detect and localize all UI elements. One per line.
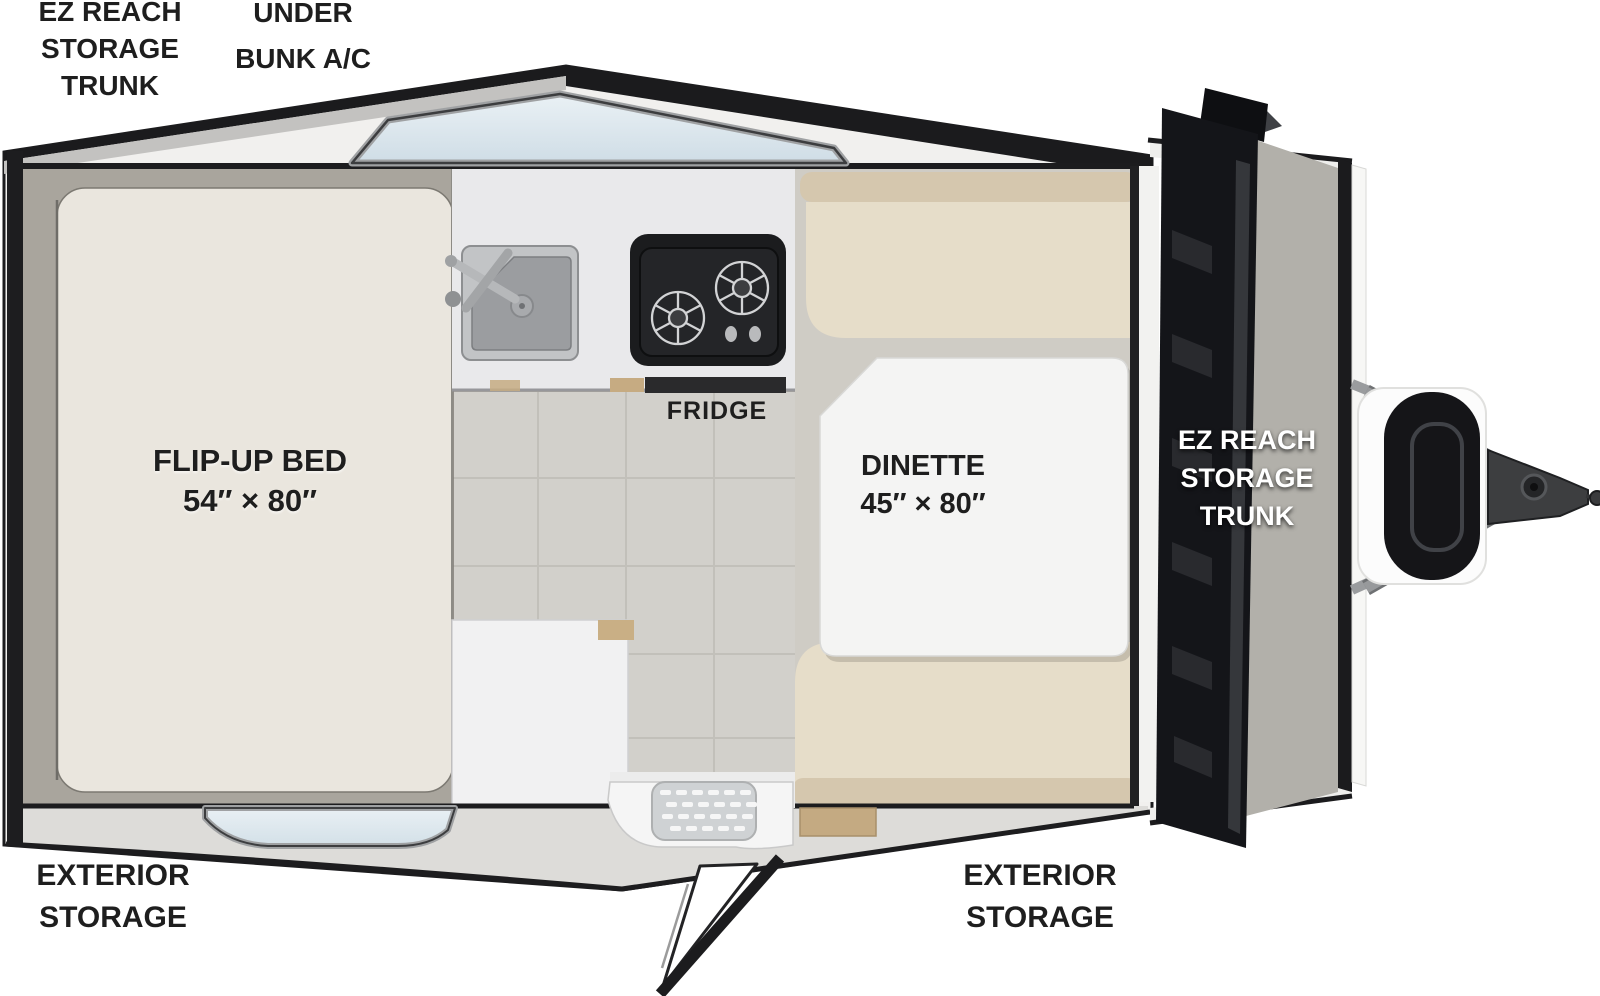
cabinet bbox=[452, 620, 634, 806]
label-front-trunk: EZ REACH STORAGE TRUNK bbox=[1137, 421, 1357, 535]
dinette-backrest-lower bbox=[793, 778, 1138, 804]
label-line: EXTERIOR bbox=[910, 855, 1170, 897]
two-burner-stove bbox=[630, 234, 786, 366]
label-line: UNDER bbox=[183, 0, 423, 36]
label-exterior-storage-left: EXTERIOR STORAGE bbox=[0, 855, 243, 939]
entry-mat bbox=[800, 808, 876, 836]
dinette-bench-upper bbox=[806, 202, 1138, 338]
stove-knob bbox=[749, 326, 761, 342]
label-line: STORAGE bbox=[910, 897, 1170, 939]
label-line: TRUNK bbox=[1137, 497, 1357, 535]
fridge-front bbox=[645, 377, 786, 393]
dinette-bench-lower bbox=[795, 642, 1138, 782]
dinette-dimensions: 45″ × 80″ bbox=[783, 485, 1063, 523]
label-fridge: FRIDGE bbox=[637, 398, 797, 424]
roof-window-door-side bbox=[205, 808, 455, 846]
hitch-ball bbox=[1590, 491, 1600, 505]
rear-wall bbox=[7, 151, 23, 843]
dinette-name: DINETTE bbox=[783, 447, 1063, 485]
label-line: BUNK A/C bbox=[183, 36, 423, 82]
label-dinette: DINETTE 45″ × 80″ bbox=[783, 447, 1063, 523]
bed-name: FLIP-UP BED bbox=[90, 441, 410, 481]
kitchen-sink bbox=[445, 246, 578, 360]
dinette-backrest-upper bbox=[800, 172, 1138, 202]
propane-tank bbox=[1358, 388, 1486, 584]
label-line: STORAGE bbox=[0, 897, 243, 939]
hitch-coupler bbox=[1488, 450, 1600, 524]
label-flip-up-bed: FLIP-UP BED 54″ × 80″ bbox=[90, 441, 410, 521]
label-exterior-storage-right: EXTERIOR STORAGE bbox=[910, 855, 1170, 939]
bed-dimensions: 54″ × 80″ bbox=[90, 481, 410, 521]
floorplan-canvas: EZ REACH STORAGE TRUNK UNDER BUNK A/C FL… bbox=[0, 0, 1600, 996]
fridge-name: FRIDGE bbox=[637, 398, 797, 424]
label-line: STORAGE bbox=[1137, 459, 1357, 497]
label-line: EXTERIOR bbox=[0, 855, 243, 897]
label-under-bunk-ac: UNDER BUNK A/C bbox=[183, 0, 423, 82]
stove-knob bbox=[725, 326, 737, 342]
label-line: EZ REACH bbox=[1137, 421, 1357, 459]
